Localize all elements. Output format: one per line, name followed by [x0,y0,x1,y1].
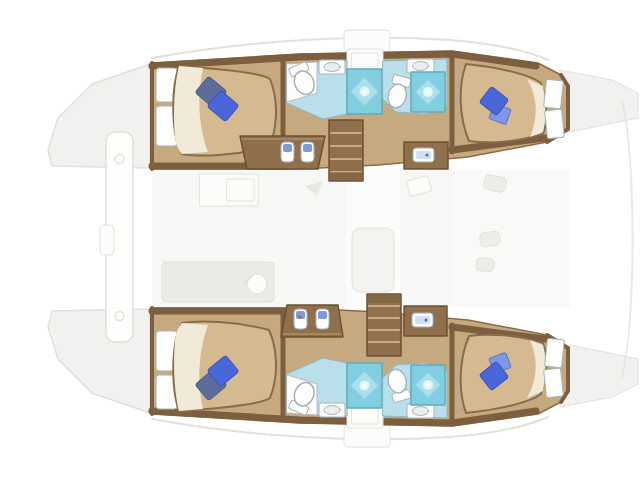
transom-arc [622,100,633,377]
desk-seat-cushion [318,311,327,319]
starboard-hull [152,308,568,428]
sink [413,62,429,71]
faucet-dot [426,154,429,157]
bow-wedge-bottom [48,309,150,413]
vanity-sink-basin [416,151,431,159]
desk-seat-cushion [303,144,312,152]
shower-drain-dot [426,90,430,94]
salon-console [352,228,394,292]
catamaran-floor-plan [0,0,640,480]
cockpit-cushion [476,257,495,272]
stair-shadow [367,294,401,303]
cockpit-cushion [479,231,501,248]
cockpit-panel [452,170,570,307]
bowsprit-tab [100,225,114,255]
hull-window [544,79,564,109]
nav-desk [281,305,343,337]
companionway-stairs [367,294,401,356]
hull-window [545,109,565,139]
vanity-sink-basin [415,316,430,324]
faucet-dot [425,319,428,322]
stair-shadow [329,172,363,181]
sink [324,63,340,72]
accent-dot [299,316,302,319]
boat-plan-canvas [0,0,640,480]
shower-drain-dot [363,90,367,94]
desk-seat-cushion [283,144,292,152]
bow-wedge-top [48,64,150,168]
